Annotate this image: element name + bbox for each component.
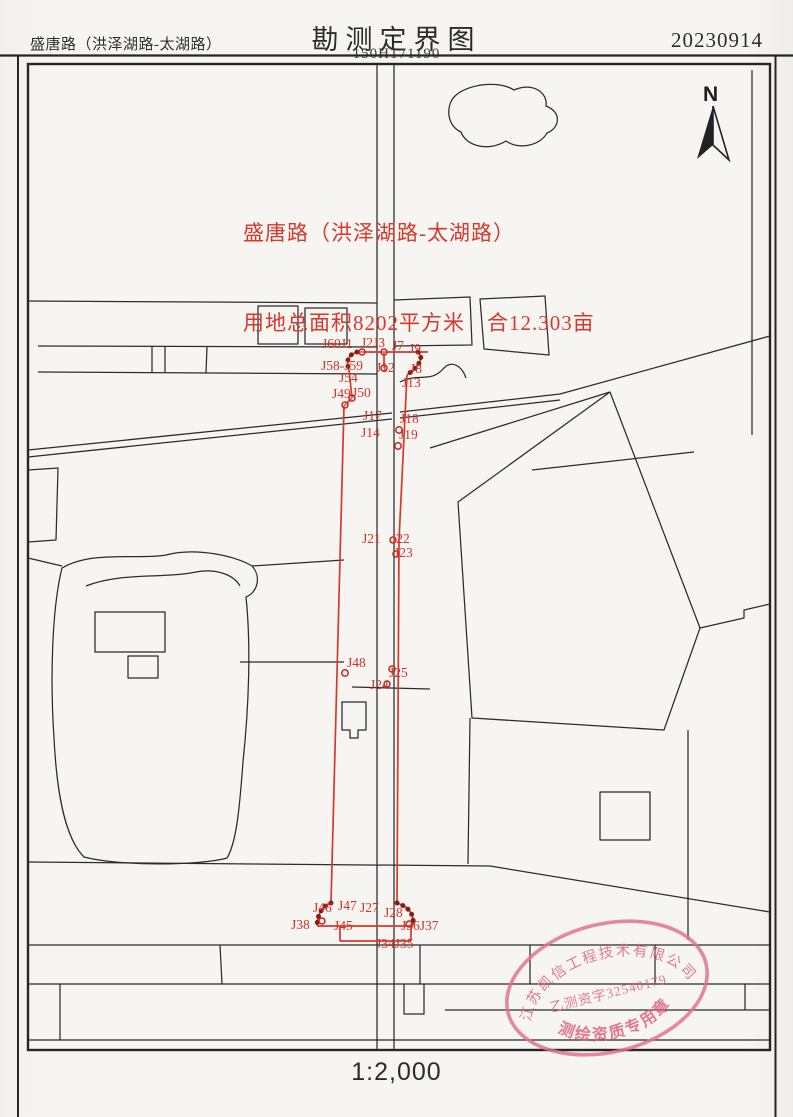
area-annotation-line2: 用地总面积8202平方米 合12.303亩 <box>243 308 595 338</box>
survey-point-label: J18 <box>400 411 419 426</box>
company-stamp: 江苏凯信工程技术有限公司 乙测资字32540179 测绘资质专用章 <box>493 901 722 1075</box>
north-arrow-icon: N <box>697 83 729 160</box>
stamp-company-text: 江苏凯信工程技术有限公司 <box>505 924 701 1027</box>
area-annotation: 盛唐路（洪泽湖路-太湖路） 用地总面积8202平方米 合12.303亩 <box>243 158 595 398</box>
survey-point-label: J47 <box>338 898 357 913</box>
survey-point-label: J27 <box>360 900 379 915</box>
map-scale-label: 1:2,000 <box>0 1058 793 1087</box>
survey-sheet: 盛唐路（洪泽湖路-太湖路） 勘测定界图 150H171190 20230914 <box>0 0 793 1117</box>
survey-point-label: J25 <box>389 665 408 680</box>
survey-point-label: J19 <box>399 427 418 442</box>
survey-point-label: J36J37 <box>401 918 439 933</box>
survey-point-label: J21 <box>362 531 381 546</box>
north-letter: N <box>703 83 718 106</box>
survey-point-label: J17 <box>363 408 382 423</box>
survey-point-label: J45 <box>334 918 353 933</box>
svg-text:江苏凯信工程技术有限公司: 江苏凯信工程技术有限公司 <box>505 924 701 1027</box>
survey-point-label: J14 <box>361 425 380 440</box>
area-annotation-line1: 盛唐路（洪泽湖路-太湖路） <box>243 218 595 248</box>
survey-point-label: J23 <box>394 545 413 560</box>
survey-point-label: J48 <box>347 655 366 670</box>
survey-point-label: J46 <box>313 900 332 915</box>
survey-point-label: J22 <box>391 531 410 546</box>
survey-point-label: J38 <box>291 917 310 932</box>
survey-point-label: J34J35 <box>376 936 414 951</box>
survey-point-label: J24 <box>370 677 389 692</box>
